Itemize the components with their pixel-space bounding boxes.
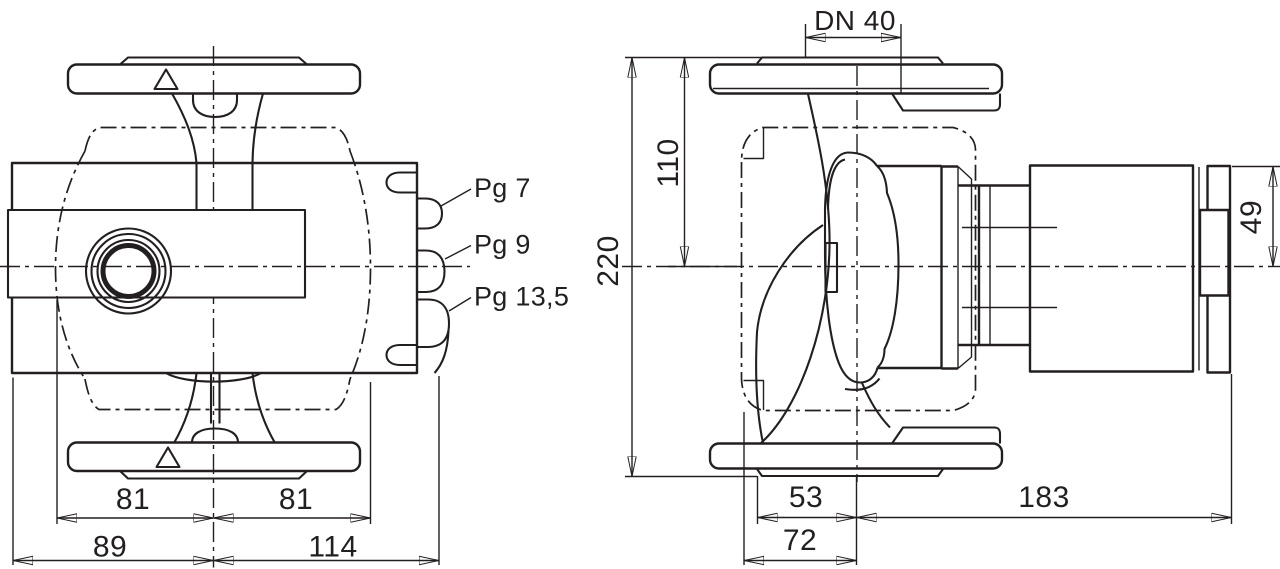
dim-label-49: 49 (1235, 200, 1268, 234)
volute-lower-connector (862, 383, 890, 428)
front-lower-body (166, 373, 275, 443)
label-pg9: Pg 9 (474, 230, 531, 260)
side-top-shell-ridge (757, 58, 943, 64)
gland-bump-pg7 (417, 199, 442, 229)
front-gland-slots (387, 173, 418, 366)
label-pg13-5: Pg 13,5 (474, 282, 569, 312)
dim-label-81-left: 81 (116, 483, 150, 516)
motor-flange (942, 167, 1031, 369)
side-bottom-lid-strip (892, 428, 1000, 444)
side-top-lid-strip (892, 94, 1000, 111)
dim-label-183: 183 (1018, 481, 1070, 514)
gland-leader-lines (441, 189, 471, 311)
dim-label-89: 89 (93, 531, 127, 564)
triangle-marker-top-icon (155, 70, 178, 90)
side-bottom-shell (710, 444, 1002, 469)
label-pg7: Pg 7 (474, 173, 531, 203)
gland-bump-pg13-5 (417, 300, 449, 374)
volute-pipe-curve (761, 94, 830, 443)
front-pipe-walls (197, 163, 253, 210)
side-volute (756, 94, 941, 443)
side-view: DN 40 220 110 49 53 183 72 (592, 5, 1280, 565)
side-insulation-steps (744, 128, 764, 410)
drawing-canvas: 81 81 89 114 Pg 7 Pg 9 Pg 13,5 (0, 0, 1280, 569)
motor-nameplate (1200, 210, 1229, 296)
dim-label-110: 110 (652, 138, 685, 187)
triangle-marker-bottom-icon (157, 448, 180, 468)
front-pipe-stub-top (172, 94, 263, 164)
front-view-dimensions: 81 81 89 114 (13, 300, 439, 565)
motor-body (1030, 166, 1193, 372)
motor-flange-details (958, 167, 1057, 369)
pump-dimensional-drawing: 81 81 89 114 Pg 7 Pg 9 Pg 13,5 (0, 0, 1280, 569)
side-bottom-shell-ridge (757, 469, 943, 476)
dim-label-53: 53 (789, 481, 823, 514)
front-gland-labels: Pg 7 Pg 9 Pg 13,5 (441, 173, 569, 312)
dim-label-81-right: 81 (279, 483, 313, 516)
dim-label-220: 220 (592, 235, 625, 287)
dim-label-114: 114 (308, 531, 357, 564)
gland-bump-pg9 (417, 251, 445, 293)
side-extension-lines (625, 24, 1280, 565)
front-view: 81 81 89 114 Pg 7 Pg 9 Pg 13,5 (0, 46, 569, 568)
dim-label-72: 72 (783, 524, 817, 557)
dim-label-dn40: DN 40 (814, 5, 896, 36)
front-extension-lines (13, 300, 439, 565)
